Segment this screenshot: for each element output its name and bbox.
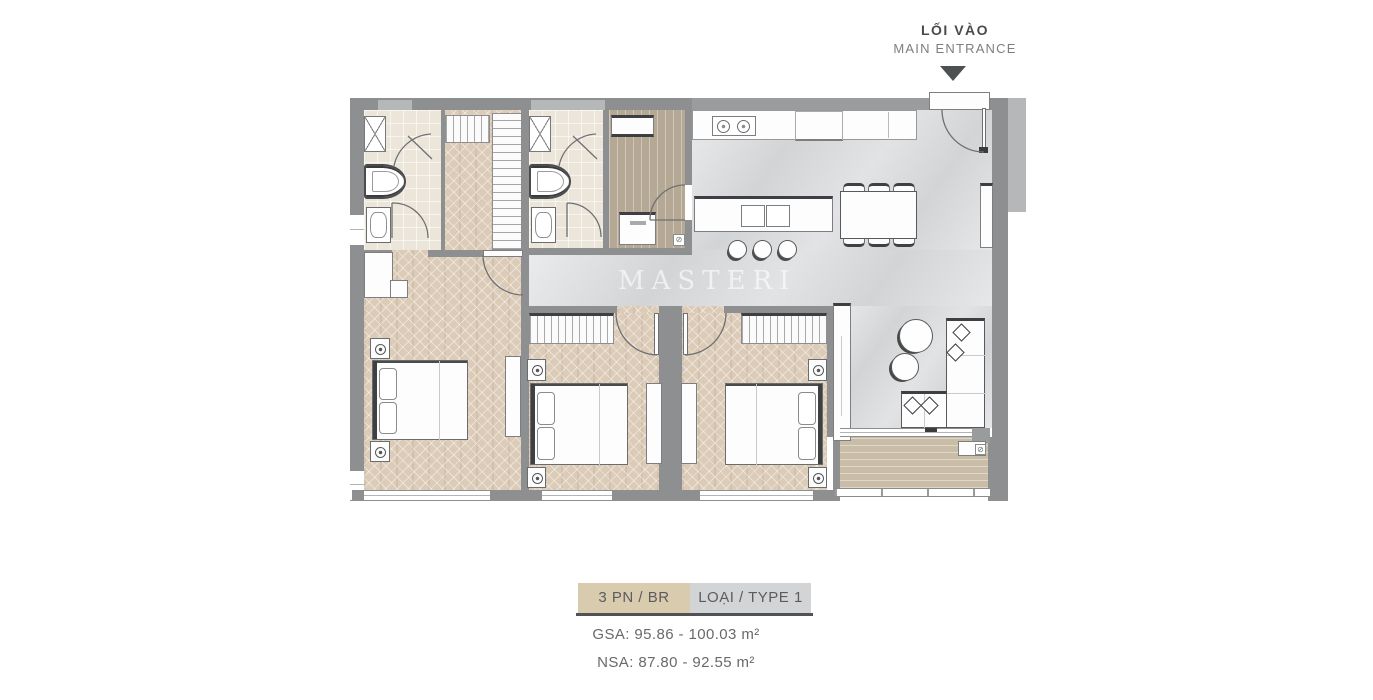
island-sink-basin (741, 205, 765, 227)
headboard (373, 361, 377, 439)
pillow (537, 427, 555, 460)
coffee-table (899, 319, 933, 353)
bedroom3-door-threshold (682, 306, 724, 313)
wall-segment (378, 100, 412, 110)
wall-segment (659, 306, 682, 313)
wall-segment (531, 100, 605, 110)
drain-icon: ⊘ (975, 444, 986, 455)
entrance-label-block: LỐI VÀO MAIN ENTRANCE (870, 22, 1040, 56)
pillow (379, 402, 397, 434)
sink (531, 207, 556, 243)
counter-cabinet (795, 111, 843, 141)
nightstand (370, 338, 390, 359)
coffee-table (891, 353, 919, 381)
bed-seam (599, 384, 600, 466)
lamp-icon (813, 365, 824, 376)
sofa-seam (947, 393, 986, 394)
bed (530, 383, 628, 465)
lamp-icon (532, 365, 543, 376)
bar-stool (753, 240, 772, 259)
window (364, 490, 490, 501)
wall-segment (724, 306, 833, 313)
sliding-door (840, 428, 988, 437)
bedroom3-door-leaf (683, 313, 688, 355)
washing-machine (619, 212, 656, 245)
dresser (364, 252, 393, 298)
headboard (531, 384, 535, 464)
bed (372, 360, 468, 440)
wall-segment (490, 490, 542, 501)
sink (366, 207, 391, 243)
badge-underline (576, 613, 813, 616)
wall-segment (529, 248, 692, 255)
window (350, 214, 364, 246)
island-sink-basin (766, 205, 790, 227)
wall-segment (428, 250, 483, 257)
wall-segment (612, 490, 700, 501)
wall-segment (988, 437, 1008, 501)
nightstand (808, 467, 827, 488)
cooktop (712, 116, 756, 136)
dresser (681, 383, 697, 464)
nsa-text: NSA: 87.80 - 92.55 m² (560, 654, 792, 671)
entrance-door-leaf (982, 108, 986, 151)
bed-seam (756, 384, 757, 466)
burner-icon (737, 120, 750, 133)
burner-icon (717, 120, 730, 133)
shaft-icon (529, 116, 551, 152)
wall-segment (685, 110, 692, 185)
wall-segment (521, 306, 617, 313)
pillow (798, 392, 816, 425)
type-badge: 3 PN / BR LOẠI / TYPE 1 (578, 583, 811, 613)
master-door-leaf (483, 250, 523, 257)
drain-icon: ⊘ (673, 234, 685, 246)
sliding-door-handle (925, 428, 937, 432)
nightstand (370, 441, 390, 462)
pillow (537, 392, 555, 425)
nightstand (808, 359, 827, 381)
console-seam (841, 336, 842, 416)
floor-plan-page: LỐI VÀO MAIN ENTRANCE MASTERI (0, 0, 1373, 700)
nightstand (527, 359, 546, 381)
shaft-icon (364, 116, 386, 152)
lamp-icon (532, 473, 543, 484)
tv-console (833, 303, 851, 441)
bar-stool (728, 240, 747, 259)
wardrobe (529, 313, 614, 344)
headboard (818, 384, 822, 464)
window (700, 490, 813, 501)
door-stop (979, 147, 988, 153)
washer-panel (630, 221, 646, 225)
nightstand (527, 467, 546, 488)
dining-table (840, 191, 917, 239)
dresser (390, 280, 408, 298)
wall-segment (352, 490, 364, 501)
utility-bench (611, 115, 654, 137)
closet-rod (445, 115, 490, 143)
watermark: MASTERI (618, 266, 796, 296)
lamp-icon (375, 344, 386, 355)
dresser (646, 383, 662, 464)
entrance-arrow-icon (940, 66, 966, 81)
bed (725, 383, 823, 465)
desk (505, 356, 521, 437)
counter-divider (888, 112, 889, 138)
wall-segment (692, 98, 929, 110)
entrance-threshold (929, 92, 990, 110)
lamp-icon (813, 473, 824, 484)
walkin-closet-shelves (492, 113, 522, 250)
wall-segment (1008, 98, 1026, 212)
balcony-railing (835, 488, 990, 497)
window (542, 490, 612, 501)
shoe-cabinet (980, 183, 993, 248)
pillow (379, 368, 397, 400)
wall-segment (350, 98, 364, 470)
wall-column (659, 313, 682, 501)
badge-type: LOẠI / TYPE 1 (690, 583, 811, 613)
entrance-label-en: MAIN ENTRANCE (870, 41, 1040, 56)
entrance-label-vi: LỐI VÀO (870, 22, 1040, 38)
bedroom2-door-leaf (654, 313, 659, 355)
pillow (798, 427, 816, 460)
gsa-text: GSA: 95.86 - 100.03 m² (560, 626, 792, 643)
badge-bedrooms: 3 PN / BR (578, 583, 690, 613)
wardrobe (741, 313, 827, 344)
bed-seam (439, 361, 440, 441)
bedroom2-door-threshold (617, 306, 659, 313)
wall-segment (603, 110, 609, 250)
lamp-icon (375, 447, 386, 458)
kitchen-island (694, 196, 833, 232)
bar-stool (778, 240, 797, 259)
wall-segment (685, 220, 692, 250)
